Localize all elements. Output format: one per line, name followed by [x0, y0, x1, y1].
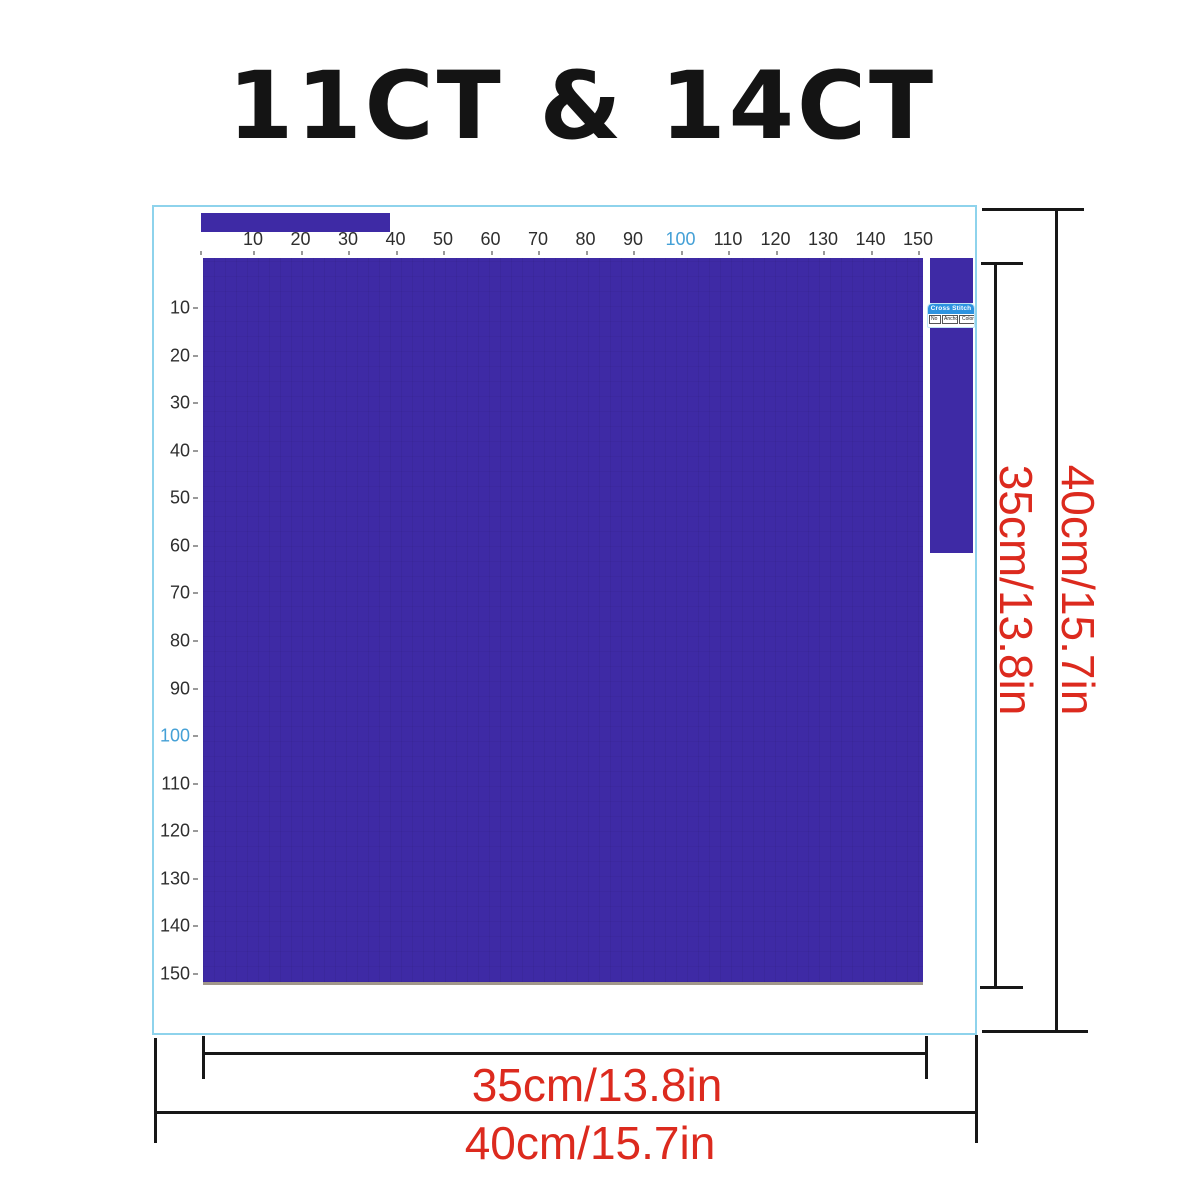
cross-stitch-legend-card: Cross Stitch No Anchor Color [927, 303, 975, 328]
total-height-cap-top [982, 208, 1084, 211]
left-ruler-tick [193, 402, 198, 404]
fabric-height-cap-top [981, 262, 1023, 265]
fabric-width-cap-left [202, 1036, 205, 1079]
left-ruler-number: 20 [170, 345, 190, 366]
total-height-cap-bottom [982, 1030, 1088, 1033]
left-ruler-number: 140 [160, 916, 190, 937]
left-ruler-tick [193, 640, 198, 642]
top-ruler-number: 50 [433, 229, 453, 250]
top-ruler-number: 10 [243, 229, 263, 250]
left-ruler-number: 30 [170, 393, 190, 414]
left-ruler-number: 70 [170, 583, 190, 604]
fabric-bottom-shadow [203, 982, 923, 985]
top-ruler-number: 110 [714, 229, 743, 250]
left-ruler-number: 60 [170, 535, 190, 556]
top-ruler-number: 60 [480, 229, 500, 250]
left-ruler-tick [193, 973, 198, 975]
left-ruler-tick [193, 830, 198, 832]
left-ruler-number: 80 [170, 630, 190, 651]
fabric-height-label: 35cm/13.8in [989, 465, 1043, 716]
top-ruler-tick [200, 251, 202, 255]
top-ruler-tick [253, 251, 255, 255]
legend-column-no: No [929, 315, 941, 324]
top-ruler-tick [918, 251, 920, 255]
top-ruler-number: 130 [808, 229, 838, 250]
legend-column-anchor: Anchor [942, 315, 958, 324]
fabric-width-cap-right [925, 1036, 928, 1079]
left-ruler-number: 120 [160, 821, 190, 842]
top-ruler-number: 20 [290, 229, 310, 250]
left-ruler-tick [193, 783, 198, 785]
top-ruler-tick [776, 251, 778, 255]
cross-stitch-legend-title: Cross Stitch [928, 304, 974, 314]
left-ruler-number: 10 [170, 298, 190, 319]
left-ruler-tick [193, 592, 198, 594]
top-ruler-tick [348, 251, 350, 255]
left-ruler-number: 150 [160, 963, 190, 984]
top-ruler-number: 30 [338, 229, 358, 250]
left-ruler-number: 110 [161, 773, 190, 794]
top-ruler-number: 150 [903, 229, 933, 250]
top-ruler-number: 40 [385, 229, 405, 250]
left-ruler-tick [193, 545, 198, 547]
top-ruler-tick [871, 251, 873, 255]
top-ruler-tick [586, 251, 588, 255]
top-ruler-number: 120 [760, 229, 790, 250]
left-ruler-number: 130 [160, 868, 190, 889]
left-ruler-number: 40 [170, 440, 190, 461]
top-ruler-number: 90 [623, 229, 643, 250]
top-ruler-tick [728, 251, 730, 255]
fabric-width-dimension-line [203, 1052, 927, 1055]
top-ruler-number: 140 [855, 229, 885, 250]
fabric-area [203, 258, 923, 982]
left-ruler-tick [193, 497, 198, 499]
fabric-right-strip-lower [930, 327, 973, 553]
top-ruler-number: 70 [528, 229, 548, 250]
top-ruler-tick [491, 251, 493, 255]
top-ruler-number: 80 [575, 229, 595, 250]
top-ruler-tick [443, 251, 445, 255]
total-height-label: 40cm/15.7in [1051, 465, 1105, 716]
left-ruler-number: 90 [170, 678, 190, 699]
fabric-right-strip-upper [930, 258, 973, 303]
left-ruler-tick [193, 735, 198, 737]
top-ruler-tick [396, 251, 398, 255]
left-ruler-number: 50 [170, 488, 190, 509]
top-ruler-tick [823, 251, 825, 255]
page-title: 11CT & 14CT [228, 52, 936, 161]
left-ruler-tick [193, 878, 198, 880]
top-ruler-tick [301, 251, 303, 255]
left-ruler-tick [193, 307, 198, 309]
legend-column-color: Color [959, 315, 975, 324]
total-width-dimension-line [155, 1111, 977, 1114]
left-ruler-tick [193, 925, 198, 927]
top-ruler-number: 100 [665, 229, 695, 250]
top-ruler-tick [633, 251, 635, 255]
cross-stitch-legend-columns: No Anchor Color [928, 314, 974, 325]
fabric-width-label: 35cm/13.8in [472, 1058, 723, 1112]
top-ruler-tick [538, 251, 540, 255]
total-width-cap-left [154, 1038, 157, 1143]
left-ruler-tick [193, 450, 198, 452]
total-width-cap-right [975, 1035, 978, 1143]
top-ruler-tick [681, 251, 683, 255]
left-ruler-tick [193, 688, 198, 690]
total-width-label: 40cm/15.7in [465, 1116, 716, 1170]
left-ruler-number: 100 [160, 726, 190, 747]
fabric-height-cap-bottom [980, 986, 1023, 989]
product-size-diagram: 11CT & 14CT 1020304050607080901001101201… [0, 0, 1200, 1200]
left-ruler-tick [193, 355, 198, 357]
